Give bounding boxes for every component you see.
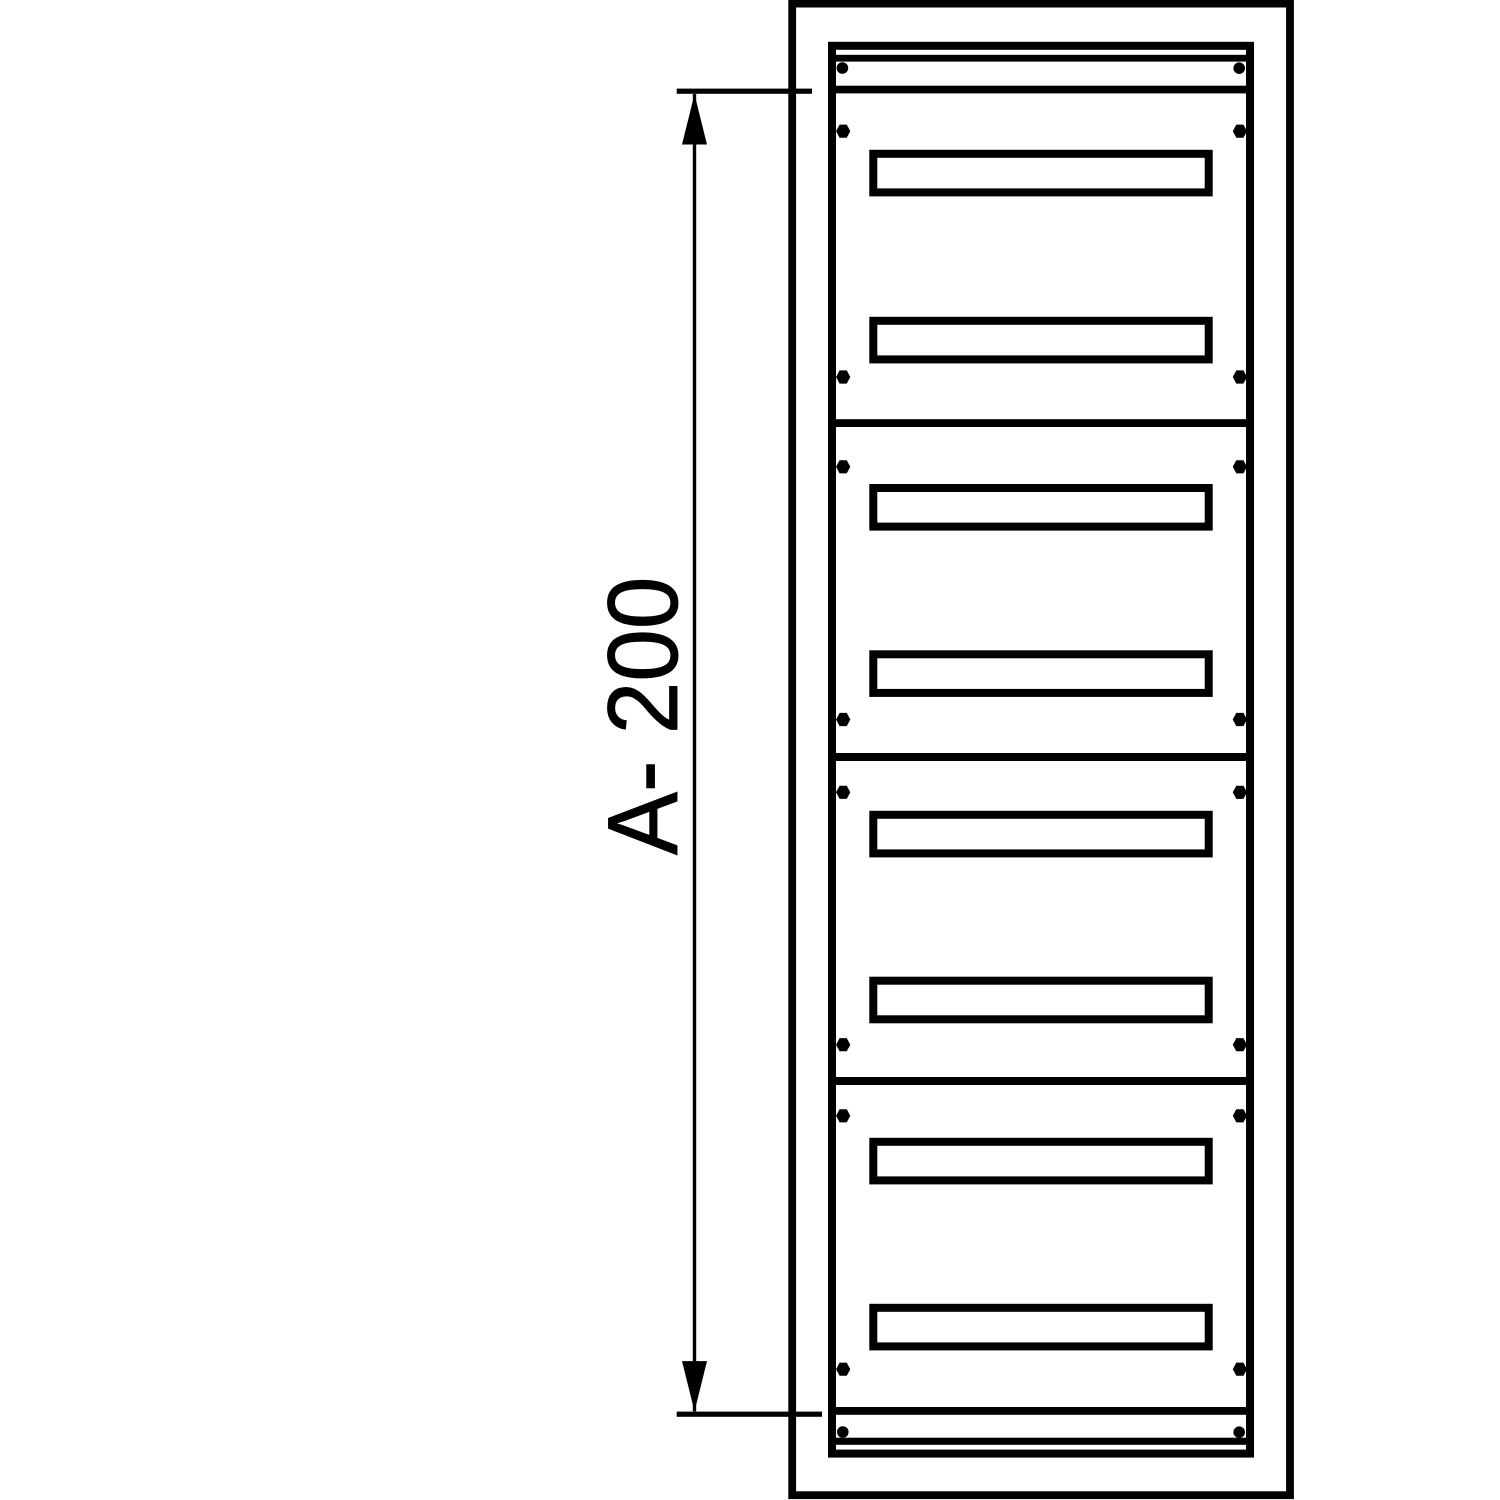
svg-text:A- 200: A- 200: [587, 576, 698, 855]
